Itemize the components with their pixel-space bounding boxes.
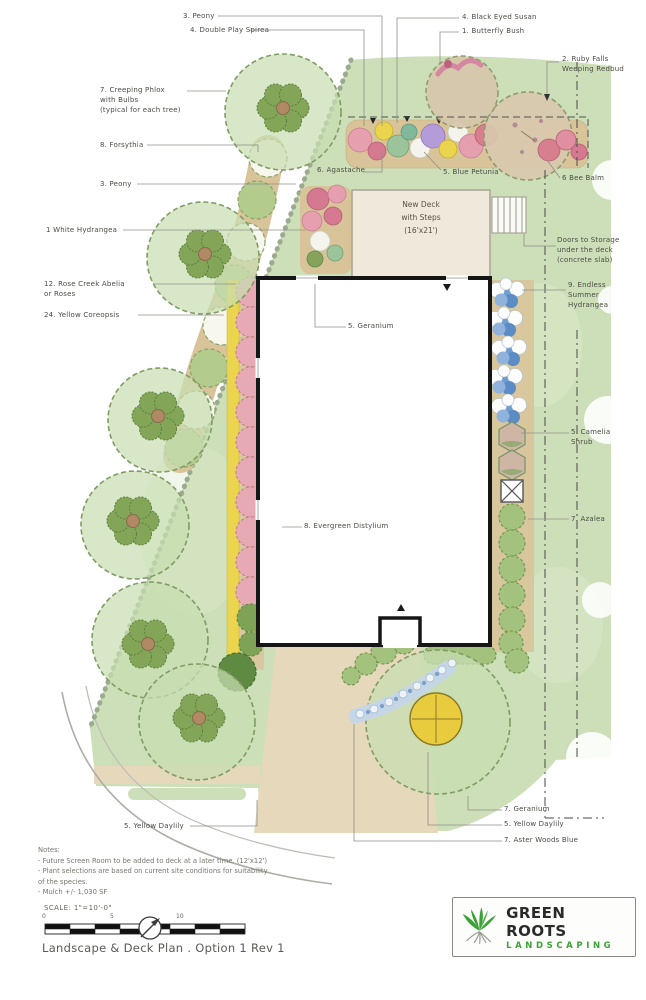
- plant-label-peony-top: 3. Peony: [183, 12, 215, 22]
- plant-label-camelia-shrub: 5. Camelia Shrub: [571, 428, 610, 448]
- plant-label-rose-creek-abelia: 12. Rose Creek Abelia or Roses: [44, 280, 125, 300]
- plant-label-blue-petunia: 5. Blue Petunia: [443, 168, 499, 178]
- plant-label-aster-woods-blue: 7. Aster Woods Blue: [504, 836, 578, 846]
- plant-label-white-hydrangea: 1 White Hydrangea: [46, 226, 117, 236]
- plant-label-yellow-daylily-left: 5. Yellow Daylily: [124, 822, 184, 832]
- scale-tick-5: 5: [110, 913, 114, 920]
- logo-text: GREEN ROOTS LANDSCAPING: [506, 904, 629, 951]
- plant-label-geranium-bottom: 7. Geranium: [504, 805, 550, 815]
- notes-block: Notes: - Future Screen Room to be added …: [38, 845, 318, 898]
- scale-label: SCALE: 1"=10'-0": [44, 904, 112, 912]
- plant-label-creeping-phlox: 7. Creeping Phlox with Bulbs (typical fo…: [100, 86, 181, 115]
- logo-subtitle: LANDSCAPING: [506, 941, 629, 951]
- plant-label-butterfly-bush: 1. Butterfly Bush: [462, 27, 524, 37]
- logo-plant-icon: [459, 906, 500, 948]
- plant-label-yellow-coreopsis: 24. Yellow Coreopsis: [44, 311, 119, 321]
- plant-label-yellow-daylily-right: 5. Yellow Daylily: [504, 820, 564, 830]
- deck-label: New Deck with Steps (16'x21'): [352, 199, 490, 237]
- scale-tick-10: 10: [176, 913, 184, 920]
- plant-label-black-eyed-susan: 4. Black Eyed Susan: [462, 13, 537, 23]
- plant-label-bee-balm: 6 Bee Balm: [562, 174, 604, 184]
- north-arrow-icon: [139, 917, 161, 939]
- drawing-title: Landscape & Deck Plan . Option 1 Rev 1: [42, 941, 285, 955]
- plant-label-azalea: 7. Azalea: [571, 515, 605, 525]
- scale-tick-0: 0: [42, 913, 46, 920]
- plant-label-geranium-mid: 5. Geranium: [348, 322, 394, 332]
- peony-bed: [300, 185, 352, 274]
- plant-label-agastache: 6. Agastache: [317, 166, 365, 176]
- house: [258, 278, 490, 645]
- landscape-plan-page: 3. Peony 4. Double Play Spirea 4. Black …: [0, 0, 646, 1000]
- plant-label-ruby-falls-redbud: 2. Ruby Falls Weeping Redbud: [562, 55, 624, 75]
- logo-name: GREEN ROOTS: [506, 904, 629, 940]
- plant-label-evergreen-distylium: 8. Evergreen Distylium: [304, 522, 388, 532]
- plant-label-double-play-spirea: 4. Double Play Spirea: [190, 26, 269, 36]
- logo-box: GREEN ROOTS LANDSCAPING: [452, 897, 636, 957]
- note-label-storage-doors: Doors to Storage under the deck (concret…: [557, 236, 620, 265]
- plant-label-peony-left: 3. Peony: [100, 180, 132, 190]
- plant-label-endless-summer-hydrangea: 9. Endless Summer Hydrangea: [568, 281, 608, 310]
- plant-label-forsythia: 8. Forsythia: [100, 141, 143, 151]
